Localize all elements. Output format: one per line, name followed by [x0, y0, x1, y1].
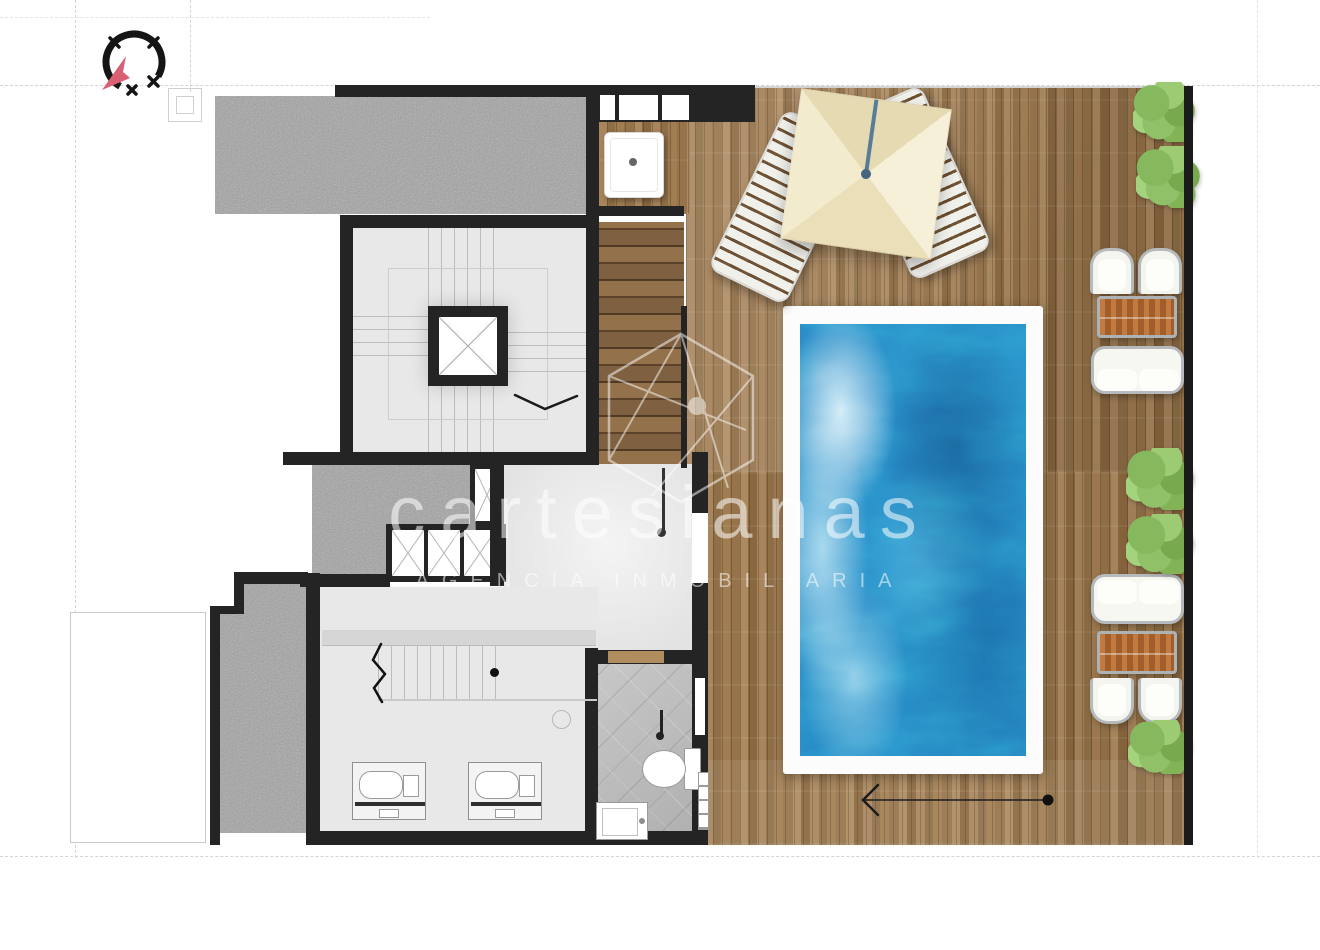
chair-cushion	[1146, 259, 1174, 291]
stair-landing-shelf	[322, 630, 596, 646]
elevator-shaft	[428, 306, 508, 386]
watermark-brand: cartesianas	[310, 470, 1010, 555]
vanity-drawer	[379, 809, 399, 818]
wall	[210, 606, 220, 845]
lower-terrace-outline	[70, 612, 206, 843]
sofa-cushion	[1139, 369, 1179, 391]
wall	[598, 206, 684, 216]
umbrella-pole	[864, 99, 878, 174]
bedroom-wall-left	[306, 573, 320, 845]
chair-cushion	[1098, 684, 1126, 716]
bathroom-window	[695, 678, 705, 735]
sofa-cushion	[1139, 580, 1179, 604]
outdoor-sofa	[1091, 346, 1184, 394]
sofa-cushion	[1097, 369, 1137, 391]
stairwell-wall-left	[340, 215, 353, 465]
boundary-wall-right	[1184, 86, 1193, 845]
vanity-drawer	[495, 809, 515, 818]
vanity-unit	[468, 762, 542, 820]
stair-break-line	[368, 642, 392, 704]
vanity-cabinet	[403, 775, 419, 797]
wall-stub	[283, 452, 343, 465]
guide-line	[190, 0, 191, 92]
shower-fitting-dot	[656, 732, 664, 740]
sofa-cushion	[1097, 580, 1137, 604]
section-cut-bar	[355, 802, 425, 806]
coffee-table	[1097, 296, 1177, 338]
wall	[586, 85, 599, 226]
elevator-x-mark	[439, 317, 497, 375]
stair-edge-line	[378, 699, 597, 701]
armchair	[1090, 248, 1134, 294]
guide-line	[0, 856, 1320, 857]
toilet-bowl	[642, 750, 686, 788]
guide-line	[1257, 0, 1258, 858]
table-seam	[1100, 653, 1174, 655]
ceiling-light-circle	[552, 710, 571, 729]
window	[662, 95, 689, 120]
newel-post-dot	[490, 668, 499, 677]
washbasin	[596, 802, 648, 840]
gravel-roof-area	[215, 96, 595, 214]
outdoor-sofa	[1091, 574, 1184, 624]
section-cut-bar	[471, 802, 541, 806]
faucet-dot	[639, 818, 645, 824]
guide-line	[0, 17, 430, 18]
parasol-umbrella	[780, 88, 952, 260]
planter-shrub	[1128, 720, 1192, 774]
sink-basin	[475, 771, 519, 799]
bedroom-stair-treads	[378, 646, 498, 700]
coffee-table	[1097, 631, 1177, 674]
table-seam	[1100, 317, 1174, 319]
basin-inner	[602, 808, 638, 836]
floor-plan-canvas: cartesianas AGENCIA INMOBILIARIA	[0, 0, 1320, 950]
drain-dot	[629, 158, 637, 166]
vanity-unit	[352, 762, 426, 820]
towel-radiator	[698, 772, 709, 830]
chair-cushion	[1098, 259, 1126, 291]
window	[619, 95, 658, 120]
direction-arrow	[860, 782, 1060, 818]
armchair	[1138, 248, 1182, 294]
shower-tray	[604, 132, 664, 198]
sink-basin	[359, 771, 403, 799]
armchair	[1138, 678, 1182, 724]
stair-direction-chevron	[511, 392, 581, 416]
reference-marker-box	[176, 96, 194, 114]
door-threshold	[608, 651, 664, 663]
wall	[234, 572, 308, 584]
watermark-subtitle: AGENCIA INMOBILIARIA	[310, 570, 1010, 593]
stairwell-wall-top	[340, 215, 599, 228]
gravel-strip	[220, 614, 306, 833]
umbrella-hub	[860, 168, 871, 179]
chair-cushion	[1146, 684, 1174, 716]
vanity-cabinet	[519, 775, 535, 797]
gravel-strip	[244, 584, 306, 614]
armchair	[1090, 678, 1134, 724]
north-arrow-compass-icon	[92, 20, 176, 104]
stairwell-wall-right	[586, 215, 599, 465]
window	[600, 95, 615, 120]
